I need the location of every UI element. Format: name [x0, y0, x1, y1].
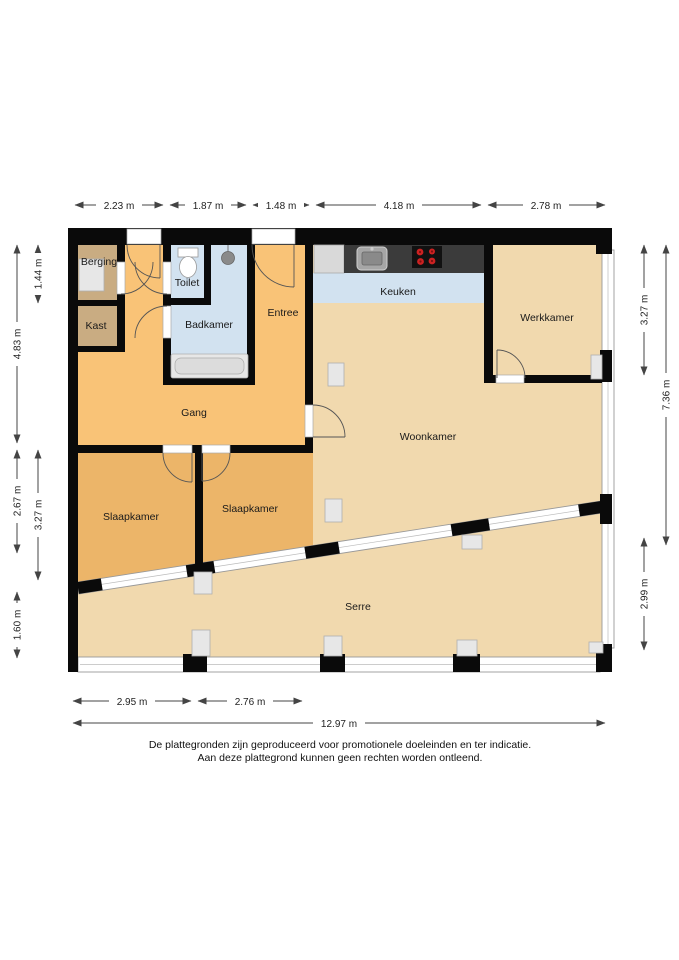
floorplan-svg: Berging Kast Toilet Badkamer Entree Keuk…	[0, 0, 679, 960]
door-gap-corridor-entry	[127, 229, 161, 244]
wall-berging-south	[78, 300, 117, 306]
floorplan-page: Berging Kast Toilet Badkamer Entree Keuk…	[0, 0, 679, 960]
dim-left-outer-1: 4.83 m	[13, 329, 24, 360]
footer-line-2: Aan deze plattegrond kunnen geen rechten…	[198, 752, 483, 764]
pier	[462, 535, 482, 549]
room-label-entree: Entree	[268, 307, 299, 319]
room-label-slaapkamer-2: Slaapkamer	[222, 503, 279, 515]
pier	[457, 640, 477, 656]
door-gap-slaapkamer-1	[163, 445, 192, 453]
wall-berging-east	[117, 245, 125, 352]
door-gap-gang-woonkamer	[305, 405, 313, 437]
room-label-gang: Gang	[181, 407, 207, 419]
footer-line-1: De plattegronden zijn geproduceerd voor …	[149, 739, 531, 751]
room-label-serre: Serre	[345, 601, 371, 613]
room-label-toilet: Toilet	[175, 277, 200, 289]
wall-corner-top-right	[596, 228, 612, 254]
dim-top-3: 1.48 m	[266, 201, 297, 212]
dim-bottom-2: 2.76 m	[235, 697, 266, 708]
wall-kast-south	[78, 346, 117, 352]
wall-gang-south-a	[68, 445, 163, 453]
wall-toilet-east	[204, 245, 211, 298]
kitchen-faucet	[370, 247, 373, 250]
door-gap-werkkamer	[496, 375, 524, 383]
dim-top-2: 1.87 m	[193, 201, 224, 212]
dim-total-width: 12.97 m	[321, 719, 357, 730]
room-label-badkamer: Badkamer	[185, 319, 233, 331]
dim-top-1: 2.23 m	[104, 201, 135, 212]
pier	[194, 572, 212, 594]
kitchen-sink-basin	[362, 252, 382, 265]
dim-left-outer-2: 2.67 m	[13, 486, 24, 517]
dim-bottom-1: 2.95 m	[117, 697, 148, 708]
dim-top-5: 2.78 m	[531, 201, 562, 212]
radiator	[325, 499, 342, 522]
cooktop	[412, 246, 442, 268]
bathtub-inner	[175, 358, 244, 374]
room-label-keuken: Keuken	[380, 286, 416, 298]
wall-gang-south-c	[230, 445, 313, 453]
toilet-bowl	[180, 257, 197, 278]
dim-right-outer-1: 7.36 m	[662, 380, 673, 411]
dim-right-inner-2: 2.99 m	[640, 579, 651, 610]
dim-left-inner-1: 1.44 m	[34, 259, 45, 290]
wall-gang-south-b	[192, 445, 202, 453]
room-label-woonkamer: Woonkamer	[400, 431, 457, 443]
door-gap-berging	[117, 262, 125, 294]
wall-toilet-south	[163, 298, 211, 305]
pier	[589, 642, 603, 653]
door-gap-front-entry	[252, 229, 295, 244]
wall-werkkamer-west	[484, 245, 493, 383]
dim-top-4: 4.18 m	[384, 201, 415, 212]
kitchen-cabinet	[314, 245, 344, 273]
room-label-kast: Kast	[85, 320, 106, 332]
door-gap-badkamer	[163, 306, 171, 338]
radiator	[328, 363, 344, 386]
door-gap-slaapkamer-2	[202, 445, 230, 453]
toilet-tank	[178, 248, 198, 257]
room-label-slaapkamer-1: Slaapkamer	[103, 511, 160, 523]
floor-fills	[68, 228, 612, 657]
footer: De plattegronden zijn geproduceerd voor …	[149, 739, 531, 764]
dim-left-outer-3: 1.60 m	[13, 610, 24, 641]
dim-right-inner-1: 3.27 m	[640, 295, 651, 326]
pier	[591, 355, 602, 379]
pier	[324, 636, 342, 656]
room-label-werkkamer: Werkkamer	[520, 312, 574, 324]
dim-left-inner-2: 3.27 m	[34, 500, 45, 531]
shower-head-icon	[222, 252, 235, 265]
door-gap-toilet	[163, 262, 171, 294]
room-label-berging: Berging	[81, 256, 117, 268]
pier	[192, 630, 210, 656]
